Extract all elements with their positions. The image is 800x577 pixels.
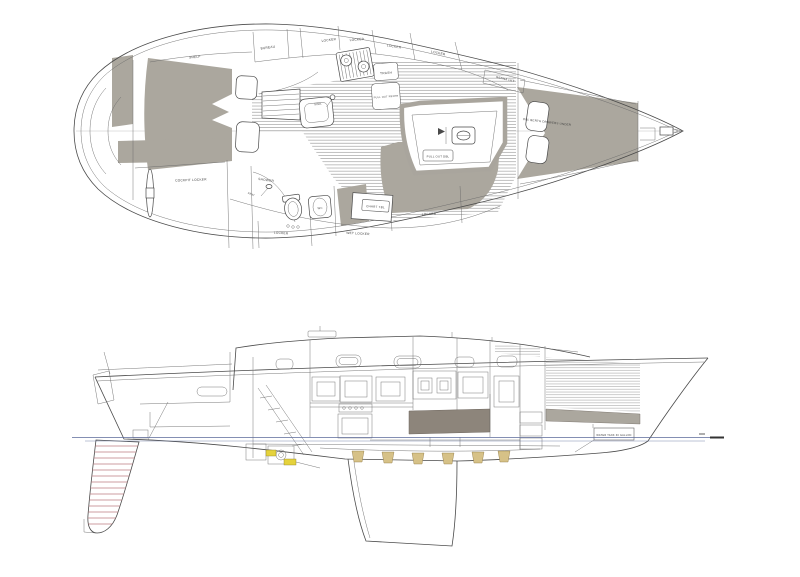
shower-head-icon <box>261 185 272 197</box>
vberth-drawers <box>520 412 542 449</box>
salon-settee-profile <box>409 409 490 434</box>
rudder <box>84 440 142 533</box>
boat-drawing-page: TRASH PULL OUT REFER PULL OUT DBL CHART … <box>0 0 800 577</box>
label-bureau: BUREAU <box>260 44 276 50</box>
plan-view: TRASH PULL OUT REFER PULL OUT DBL CHART … <box>74 24 683 249</box>
cockpit-seat-band <box>118 138 232 163</box>
galley-sink <box>298 95 337 129</box>
head-basin: WC <box>308 195 332 219</box>
bulkhead-shower <box>251 166 253 249</box>
fwd-cabin-slats <box>546 357 640 412</box>
trash-bin: TRASH <box>373 62 398 81</box>
pull-out-refer: PULL OUT REFER <box>371 82 401 110</box>
stern-post <box>104 352 110 374</box>
companionway-steps-plan <box>262 89 300 120</box>
label-water-tank: WATER TANK 30 GALLON <box>596 434 631 437</box>
chart-table: CHART TBL <box>351 193 393 222</box>
joinery-cabinets <box>253 371 560 447</box>
label-locker-1: LOCKER <box>321 37 336 43</box>
keel-inner-line <box>354 462 370 538</box>
locker-divider-4 <box>310 214 312 246</box>
bulkhead-head-fwd <box>334 186 336 236</box>
v-berth-pillow-1 <box>525 101 550 133</box>
locker-divider-3 <box>258 221 259 248</box>
floor-frames <box>352 451 510 464</box>
profile-view: WATER TANK 30 GALLON <box>72 326 724 546</box>
label-cockpit-locker: COCKPIT LOCKER <box>175 177 207 182</box>
aft-berth-pillow-1 <box>235 75 257 99</box>
label-wet-locker: WET LOCKER <box>346 231 370 236</box>
label-sink: SINK <box>314 102 322 107</box>
drawing-svg: TRASH PULL OUT REFER PULL OUT DBL CHART … <box>0 0 800 577</box>
portlights <box>197 355 517 396</box>
coach-roof <box>233 336 590 390</box>
v-berth-pillow-2 <box>525 135 550 165</box>
keel <box>348 459 457 546</box>
stern-fitting <box>133 430 148 438</box>
bilge-stringer <box>320 448 540 451</box>
anchor-roller <box>660 127 673 135</box>
label-locker-2: LOCKER <box>350 37 365 42</box>
label-shelf: SHELF <box>189 55 201 60</box>
label-pull-out-dbl: PULL OUT DBL <box>427 155 450 159</box>
helm-pedestal <box>146 188 154 198</box>
anchor-locker-step <box>640 128 655 140</box>
label-wc: WC <box>317 206 323 210</box>
deck-hatch-profile <box>308 331 336 337</box>
aft-berth-pillow-2 <box>235 121 260 152</box>
label-locker-aft: LOCKER <box>274 230 289 235</box>
water-tank: WATER TANK 30 GALLON <box>575 424 634 452</box>
galley-stove <box>336 47 375 81</box>
label-shower: SHOWER <box>258 177 275 183</box>
rudder-contours <box>84 446 142 524</box>
aft-deck-seat <box>112 55 133 127</box>
label-locker-4: LOCKER <box>431 50 447 57</box>
stern-rail-line <box>98 364 232 370</box>
bulkhead-head-aft <box>227 160 229 248</box>
label-locker-salon: LOCKER <box>422 212 437 217</box>
label-locker-3: LOCKER <box>387 43 402 49</box>
